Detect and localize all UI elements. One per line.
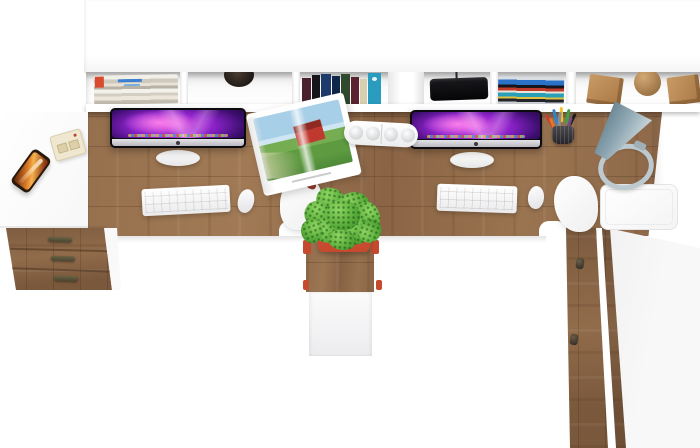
middle-cabinet [309, 292, 372, 356]
pedestal-top-edge [0, 226, 106, 228]
imac-right-base [450, 152, 494, 168]
pencil-cup [544, 106, 580, 148]
drawer-pedestal [0, 224, 124, 294]
wood-decor-cube [666, 74, 700, 106]
strip-seam [380, 124, 382, 144]
keyboard-right [437, 184, 518, 214]
niche-center-post [388, 72, 424, 106]
drawer-handle [51, 256, 75, 262]
round-cup [224, 72, 254, 87]
workstation-photo [0, 0, 700, 448]
dvd-stack [498, 76, 564, 105]
cup-body [552, 126, 574, 144]
gadget-button [57, 142, 69, 153]
imac-right-chin [412, 140, 540, 147]
book-spine [351, 77, 359, 104]
speaker-cable [455, 72, 457, 79]
side-table-inner-edge [605, 189, 673, 225]
imac-right [410, 110, 542, 149]
wood-decor-sphere [634, 72, 661, 96]
imac-left-screen [112, 110, 244, 138]
magazine-text-mark [124, 84, 140, 86]
drawer-handle [54, 276, 78, 282]
book-logo [372, 77, 377, 81]
keyboard-left [141, 185, 230, 217]
strip-socket [349, 125, 364, 140]
plant-leaf [326, 200, 360, 230]
imac-right-screen [412, 112, 540, 139]
magazine-text-mark [118, 79, 142, 82]
drawer-handle [48, 237, 72, 243]
red-accent [376, 280, 382, 290]
imac-left-chin [112, 139, 244, 146]
potted-plant [298, 186, 386, 268]
niche-divider [180, 72, 188, 106]
black-speaker [430, 77, 489, 101]
strip-socket [384, 127, 399, 142]
gadget-button [68, 139, 80, 150]
imac-left [110, 108, 246, 148]
magazine-logo [95, 77, 104, 88]
white-side-table [600, 184, 678, 230]
apple-logo-dot [474, 142, 478, 146]
imac-left-base [156, 150, 200, 166]
desk-lamp [588, 100, 658, 182]
red-accent [303, 280, 309, 290]
tall-cabinet [552, 222, 700, 448]
strip-socket [366, 126, 381, 141]
gadget-led [73, 133, 77, 137]
magazine-stack [94, 74, 178, 104]
book-spine [368, 73, 381, 104]
white-power-strip [343, 120, 418, 148]
niche-divider [292, 72, 300, 106]
book-spine [360, 79, 367, 104]
niche-divider [566, 72, 576, 106]
hutch-top-slab [84, 0, 700, 73]
strip-socket [401, 128, 416, 143]
apple-logo-dot [176, 141, 180, 145]
niche-divider [490, 72, 498, 106]
